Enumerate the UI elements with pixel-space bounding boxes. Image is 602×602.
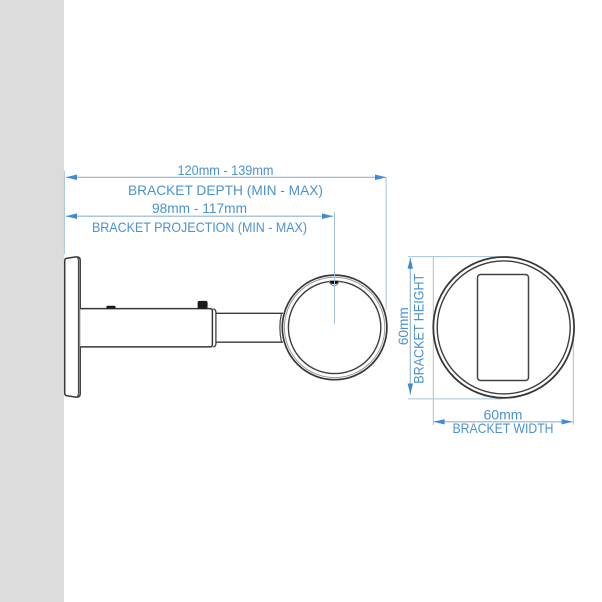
- svg-text:120mm - 139mm: 120mm - 139mm: [178, 163, 274, 178]
- svg-text:BRACKET DEPTH (MIN - MAX): BRACKET DEPTH (MIN - MAX): [128, 183, 323, 198]
- svg-text:BRACKET PROJECTION (MIN - MAX): BRACKET PROJECTION (MIN - MAX): [92, 220, 307, 235]
- svg-text:60mm: 60mm: [396, 307, 411, 345]
- svg-text:98mm - 117mm: 98mm - 117mm: [152, 201, 247, 216]
- svg-text:BRACKET HEIGHT: BRACKET HEIGHT: [411, 273, 426, 384]
- svg-text:BRACKET WIDTH: BRACKET WIDTH: [453, 421, 554, 436]
